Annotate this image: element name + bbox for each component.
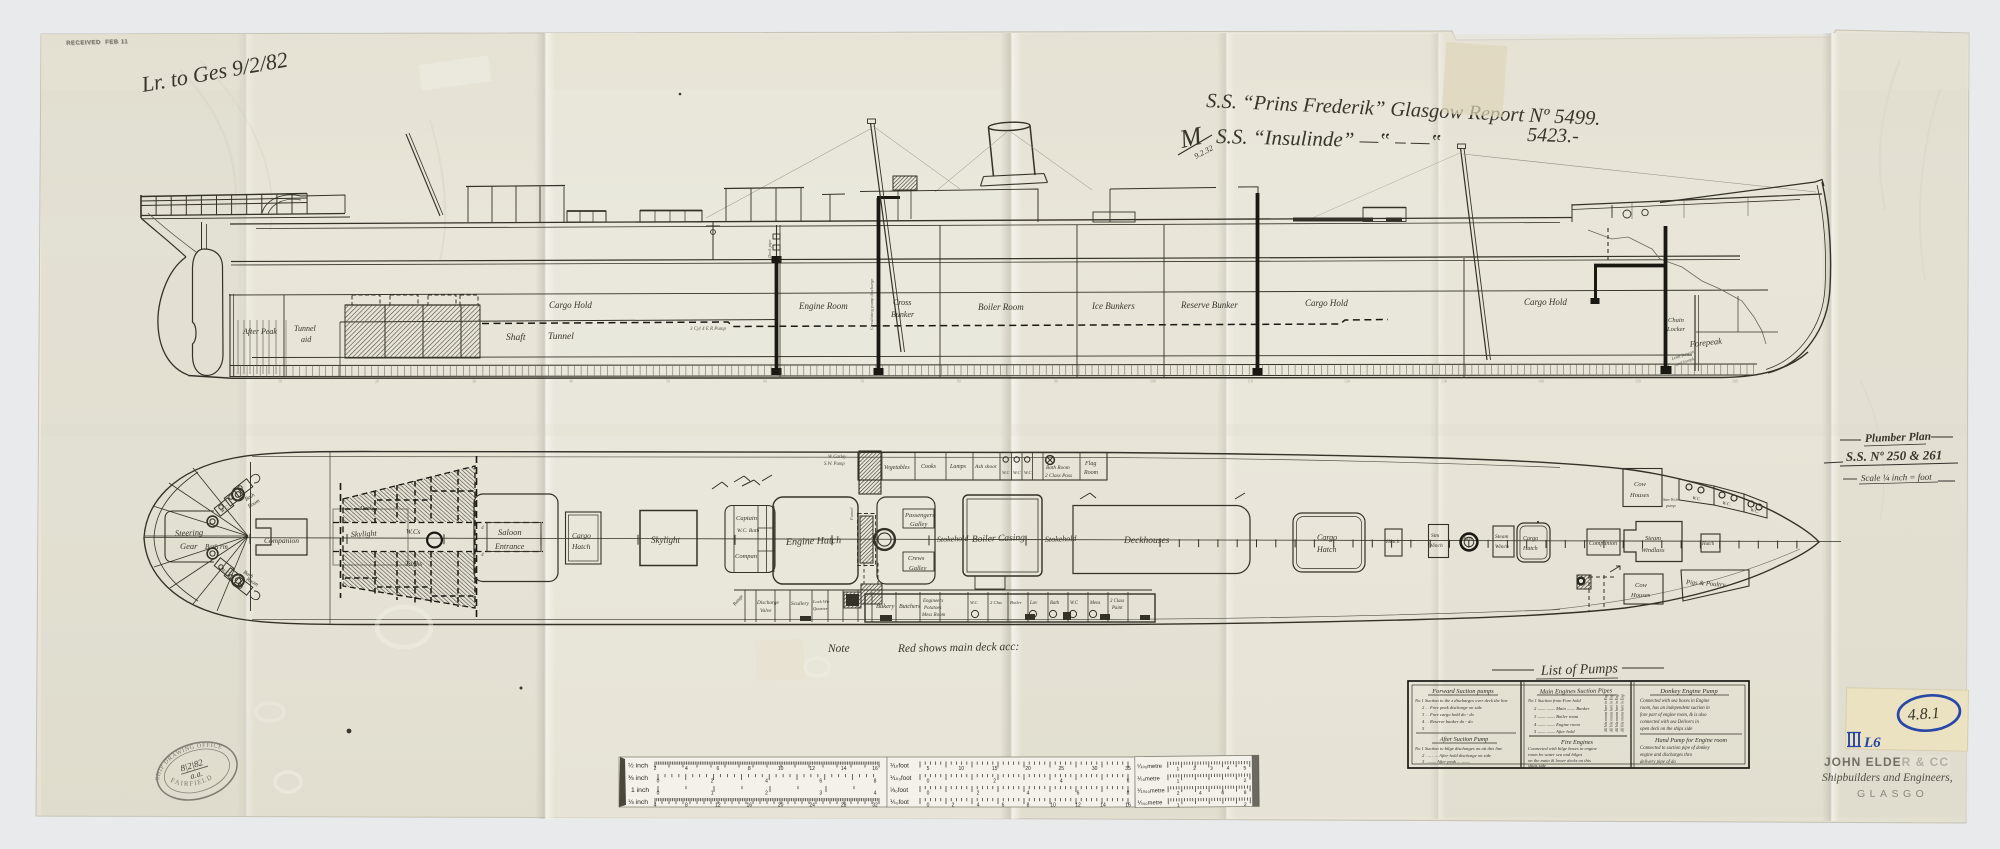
svg-text:8: 8	[1027, 803, 1030, 809]
svg-text:W.C. Bath: W.C. Bath	[737, 528, 760, 534]
svg-text:connected with sea Delivers: connected with sea Delivers in	[1640, 720, 1699, 725]
svg-text:Deck: Deck	[359, 506, 373, 512]
svg-text:Tanks: Tanks	[405, 559, 422, 568]
svg-text:Paint: Paint	[1111, 606, 1123, 611]
svg-text:2: 2	[977, 791, 980, 797]
svg-text:Tunnel: Tunnel	[294, 324, 317, 333]
svg-text:ships side: ships side	[1528, 763, 1546, 768]
svg-text:Houses: Houses	[1630, 592, 1651, 599]
svg-text:Note: Note	[827, 643, 850, 655]
svg-text:⅕₀metre: ⅕₀metre	[1137, 776, 1160, 782]
svg-text:2 Clas: 2 Clas	[990, 600, 1002, 605]
svg-text:Discharge: Discharge	[756, 600, 780, 606]
svg-text:Bath Room: Bath Room	[1046, 465, 1070, 471]
svg-text:Bath: Bath	[1050, 601, 1060, 606]
svg-text:2 Class: 2 Class	[1110, 599, 1124, 604]
svg-text:Cooks: Cooks	[921, 464, 937, 470]
svg-text:Funnel: Funnel	[849, 507, 854, 521]
svg-text:8: 8	[685, 803, 688, 809]
svg-text:Mens: Mens	[1089, 601, 1101, 606]
svg-text:W.C: W.C	[1024, 470, 1033, 475]
svg-text:Flag: Flag	[1084, 461, 1096, 467]
svg-text:Butchers: Butchers	[899, 604, 921, 610]
svg-text:20: 20	[375, 379, 379, 384]
svg-text:1: 1	[1177, 779, 1180, 785]
svg-text:4: 4	[1027, 791, 1030, 797]
svg-text:⅕₀foot: ⅕₀foot	[890, 799, 909, 806]
svg-text:Boiler Room: Boiler Room	[978, 302, 1024, 312]
svg-text:30: 30	[1092, 766, 1098, 772]
svg-text:2: 2	[654, 766, 657, 772]
svg-text:2 . . Fore peak di: 2 . . Fore peak discharge on side	[1422, 705, 1482, 710]
svg-text:Connected with sea boxes in E: Connected with sea boxes in Engine	[1640, 699, 1710, 704]
svg-text:10: 10	[278, 379, 282, 384]
svg-text:Vegetables: Vegetables	[884, 465, 910, 471]
svg-text:W.C: W.C	[1070, 601, 1079, 606]
svg-text:10: 10	[778, 766, 784, 772]
svg-text:Boiler: Boiler	[1010, 600, 1022, 605]
svg-text:5: 5	[1243, 765, 1246, 771]
svg-text:Circulating pump discharge: Circulating pump discharge	[869, 279, 874, 330]
svg-text:No 1 Suction from Fore hold: No 1 Suction from Fore hold	[1527, 698, 1581, 703]
svg-text:Steering: Steering	[175, 527, 204, 538]
svg-text:4: 4	[765, 779, 768, 785]
svg-text:90: 90	[1054, 379, 1058, 384]
svg-text:Fire Engines: Fire Engines	[1560, 739, 1593, 746]
svg-text:Plumber Plan: Plumber Plan	[1865, 431, 1932, 445]
svg-text:Steam: Steam	[1495, 534, 1508, 540]
svg-text:Galley: Galley	[909, 565, 926, 572]
svg-text:Hatch: Hatch	[1701, 542, 1715, 547]
svg-text:Potatoes: Potatoes	[923, 606, 942, 611]
svg-text:2: 2	[765, 791, 768, 797]
svg-text:Donkey Engine Pump: Donkey Engine Pump	[1659, 688, 1718, 695]
svg-text:Valve: Valve	[760, 608, 772, 614]
svg-text:50: 50	[666, 379, 670, 384]
svg-text:Tunnel: Tunnel	[548, 332, 574, 342]
svg-text:1: 1	[1177, 803, 1180, 809]
svg-text:Main Engines Suction Pipes: Main Engines Suction Pipes	[1539, 687, 1613, 695]
svg-text:6: 6	[1077, 791, 1080, 797]
svg-text:4: 4	[1227, 766, 1230, 772]
svg-text:Cargo Hold: Cargo Hold	[1305, 298, 1348, 308]
svg-text:Skylight: Skylight	[651, 535, 680, 545]
svg-text:4: 4	[481, 524, 484, 531]
svg-text:Boiler Casing: Boiler Casing	[972, 533, 1026, 545]
svg-text:5423.-: 5423.-	[1527, 124, 1579, 147]
svg-text:Cargo: Cargo	[572, 531, 591, 540]
svg-text:⅛ inch: ⅛ inch	[628, 799, 648, 806]
svg-text:30: 30	[472, 379, 476, 384]
svg-text:6: 6	[1221, 790, 1224, 796]
svg-text:4: 4	[1199, 790, 1202, 796]
svg-text:14: 14	[1100, 803, 1106, 809]
svg-text:Cargo Hold: Cargo Hold	[1524, 297, 1567, 307]
svg-text:All bilz rooms here in Eng: All bilz rooms here in Eng	[1621, 694, 1625, 733]
svg-text:20: 20	[778, 803, 784, 809]
svg-text:Shipbuilders and Engineers,: Shipbuilders and Engineers,	[1822, 772, 1953, 784]
svg-text:8: 8	[874, 779, 877, 785]
svg-text:28: 28	[841, 803, 847, 809]
svg-text:0: 0	[927, 791, 930, 797]
svg-text:Hatch: Hatch	[1385, 539, 1400, 545]
svg-text:12: 12	[715, 803, 721, 809]
svg-text:All bilz rooms here in Eng: All bilz rooms here in Eng	[1615, 694, 1619, 733]
svg-text:⅜ inch: ⅜ inch	[628, 775, 648, 782]
svg-text:4: 4	[481, 551, 484, 558]
svg-text:Stm Wch: Stm Wch	[1663, 497, 1679, 502]
svg-text:3 . —— After peak ...: 3 . —— After peak ... ——	[1422, 759, 1471, 764]
svg-text:Engineers: Engineers	[922, 599, 943, 604]
svg-text:4: 4	[977, 803, 980, 809]
svg-text:3 —— —— Boiler room: 3 —— —— Boiler room	[1534, 714, 1579, 719]
svg-text:Compan: Compan	[735, 553, 757, 560]
svg-text:⅕₀₀metre: ⅕₀₀metre	[1137, 800, 1162, 806]
svg-text:Hatch: Hatch	[1316, 545, 1337, 554]
svg-text:Forward Suction pumps: Forward Suction pumps	[1431, 688, 1494, 695]
svg-text:Saloon: Saloon	[498, 527, 522, 537]
svg-text:W.C: W.C	[1002, 470, 1011, 475]
svg-text:Companion: Companion	[264, 536, 299, 545]
svg-text:aid: aid	[301, 335, 312, 344]
svg-text:2 —— —— Main —— Bunker: 2 —— —— Main —— Bunker	[1534, 706, 1590, 711]
svg-text:Engine Room: Engine Room	[798, 301, 848, 311]
svg-text:Galley: Galley	[910, 521, 927, 528]
svg-text:4.8.1: 4.8.1	[1907, 705, 1940, 724]
svg-text:Stm: Stm	[1431, 533, 1439, 539]
svg-text:3 . . Fore cargo ho: 3 . . Fore cargo hold do - do	[1422, 712, 1475, 717]
svg-text:Crews: Crews	[908, 555, 925, 562]
svg-text:Red shows main deck acc:: Red shows main deck acc:	[897, 641, 1020, 655]
svg-text:2: 2	[711, 779, 714, 785]
svg-text:W.C: W.C	[970, 600, 979, 605]
svg-text:Passengers: Passengers	[904, 512, 935, 519]
svg-text:6: 6	[1127, 779, 1130, 785]
svg-text:Cow: Cow	[1634, 481, 1647, 488]
svg-text:W.C: W.C	[1013, 470, 1022, 475]
svg-text:fore part of engine room, & is: fore part of engine room, & is also	[1640, 713, 1707, 718]
svg-text:Scale ¼ inch = foot: Scale ¼ inch = foot	[1861, 472, 1932, 483]
svg-text:2: 2	[1244, 778, 1247, 784]
svg-text:Winch: Winch	[1495, 544, 1509, 550]
svg-text:GLASGO: GLASGO	[1857, 788, 1928, 800]
svg-text:5: 5	[927, 766, 930, 772]
svg-text:room bo water sea and bil: room bo water sea and bilges	[1528, 752, 1583, 757]
svg-text:All bilz rooms here in Eng: All bilz rooms here in Eng	[1610, 694, 1614, 733]
svg-text:20: 20	[1025, 766, 1031, 772]
svg-text:S.W. Pump: S.W. Pump	[824, 462, 845, 467]
svg-text:150: 150	[1635, 379, 1641, 384]
svg-text:W Carley: W Carley	[828, 455, 847, 460]
svg-text:Lav: Lav	[1029, 601, 1038, 606]
svg-text:130: 130	[1441, 379, 1447, 384]
svg-text:1: 1	[711, 791, 714, 797]
svg-text:5 —— —— After hold: 5 —— —— After hold	[1534, 729, 1575, 734]
svg-text:Houses: Houses	[1629, 492, 1650, 499]
svg-text:120: 120	[1344, 379, 1350, 384]
svg-text:Stokehold: Stokehold	[937, 534, 970, 544]
svg-text:No 1 Suction to bilge discharg: No 1 Suction to bilge discharges on att …	[1414, 746, 1502, 751]
svg-text:Hatch: Hatch	[571, 542, 591, 551]
svg-text:8: 8	[1127, 791, 1130, 797]
svg-text:4: 4	[654, 803, 657, 809]
svg-text:Companion: Companion	[1589, 541, 1617, 547]
svg-text:⅒foot: ⅒foot	[890, 763, 909, 770]
svg-text:Room: Room	[1083, 470, 1099, 476]
svg-text:12: 12	[1075, 803, 1081, 809]
svg-text:Scullery: Scullery	[791, 601, 810, 607]
svg-text:Captain: Captain	[736, 515, 757, 522]
svg-text:2: 2	[1193, 766, 1196, 772]
svg-text:2: 2	[1177, 791, 1180, 797]
svg-text:4 . . Reserve bunke: 4 . . Reserve bunker do - do	[1422, 719, 1473, 724]
svg-text:1 inch: 1 inch	[631, 787, 649, 794]
svg-text:After Peak: After Peak	[242, 327, 277, 336]
svg-text:4: 4	[874, 791, 877, 797]
svg-text:0: 0	[657, 791, 660, 797]
svg-text:Hand Pump for Engine room: Hand Pump for Engine room	[1654, 737, 1727, 744]
svg-text:Chain: Chain	[1668, 317, 1684, 324]
svg-text:Entrance: Entrance	[494, 542, 525, 551]
svg-text:⅒₀foot: ⅒₀foot	[890, 775, 912, 782]
svg-text:Connected to suction pipe of d: Connected to suction pipe of donkey	[1640, 746, 1711, 751]
svg-text:No 1 Suction to the z discharg: No 1 Suction to the z discharges over de…	[1414, 698, 1508, 703]
svg-text:100: 100	[1150, 379, 1156, 384]
svg-text:Deck pipe: Deck pipe	[767, 240, 772, 260]
svg-text:Cargo: Cargo	[1317, 533, 1337, 542]
svg-text:⅓₀foot: ⅓₀foot	[890, 787, 908, 794]
svg-text:Reserve Bunker: Reserve Bunker	[1180, 300, 1238, 310]
svg-text:Cross: Cross	[893, 298, 911, 307]
svg-text:List of Pumps: List of Pumps	[1540, 661, 1619, 679]
svg-text:Deckhouses: Deckhouses	[1123, 536, 1170, 546]
svg-text:2 . ... . ... After hold: 2 . ... . ... After hold discharge on si…	[1422, 753, 1491, 758]
svg-text:Mast: Mast	[1460, 536, 1472, 542]
svg-text:6: 6	[819, 779, 822, 785]
svg-text:Lock Wtr: Lock Wtr	[812, 599, 830, 604]
svg-text:Winch: Winch	[1429, 543, 1443, 549]
svg-text:110: 110	[1247, 379, 1253, 384]
svg-text:0: 0	[657, 779, 660, 785]
svg-text:room, has an independent suct: room, has an independent suction in	[1640, 706, 1710, 711]
svg-text:All bilz rooms here in Eng: All bilz rooms here in Eng	[1604, 694, 1608, 733]
svg-text:Hatch: Hatch	[1522, 546, 1538, 552]
svg-text:2 Class Pass: 2 Class Pass	[1045, 473, 1072, 479]
svg-text:8: 8	[748, 766, 751, 772]
svg-text:32: 32	[872, 803, 878, 809]
svg-text:delivery pipe of do: delivery pipe of do	[1640, 760, 1676, 765]
svg-text:40: 40	[569, 379, 573, 384]
svg-text:W.Cs: W.Cs	[406, 528, 421, 536]
svg-text:Skylight: Skylight	[351, 529, 378, 539]
svg-text:15: 15	[992, 766, 998, 772]
svg-text:10: 10	[1050, 803, 1056, 809]
svg-text:⅒₀₀metre: ⅒₀₀metre	[1137, 788, 1165, 794]
svg-text:0: 0	[927, 803, 930, 809]
svg-text:open deck on the ships side: open deck on the ships side	[1640, 727, 1693, 732]
svg-text:Cow: Cow	[1635, 582, 1648, 589]
svg-text:Steam: Steam	[1645, 535, 1661, 542]
svg-text:Ash shoot: Ash shoot	[974, 464, 997, 470]
svg-text:4: 4	[1060, 779, 1063, 785]
svg-text:S.S. Nº 250 & 261: S.S. Nº 250 & 261	[1846, 447, 1943, 464]
svg-text:4: 4	[685, 766, 688, 772]
svg-text:Locker: Locker	[1666, 326, 1686, 333]
svg-text:14: 14	[841, 766, 847, 772]
svg-text:160: 160	[1732, 379, 1738, 384]
svg-text:3: 3	[819, 791, 822, 797]
svg-text:Quarter: Quarter	[813, 606, 828, 611]
svg-text:3: 3	[1210, 766, 1213, 772]
svg-text:6: 6	[717, 766, 720, 772]
svg-text:Windlass: Windlass	[1641, 547, 1665, 554]
svg-text:25: 25	[1059, 766, 1065, 772]
svg-text:Connected with bilge boxes i: Connected with bilge boxes in engine	[1528, 746, 1597, 751]
svg-text:2: 2	[952, 803, 955, 809]
svg-text:Shaft: Shaft	[506, 332, 526, 343]
svg-text:1: 1	[1176, 766, 1179, 772]
svg-text:6: 6	[1002, 803, 1005, 809]
svg-text:70: 70	[860, 379, 864, 384]
svg-text:Engine Hatch: Engine Hatch	[785, 535, 842, 548]
svg-text:Lamps: Lamps	[949, 464, 967, 470]
svg-text:8: 8	[1244, 790, 1247, 796]
svg-text:Ice Bunkers: Ice Bunkers	[1091, 301, 1135, 311]
svg-text:16: 16	[747, 803, 753, 809]
svg-text:140: 140	[1538, 379, 1544, 384]
svg-text:2: 2	[993, 779, 996, 785]
svg-text:16: 16	[872, 766, 878, 772]
svg-text:35: 35	[1125, 766, 1131, 772]
svg-text:Mess Room: Mess Room	[921, 613, 946, 618]
svg-text:24: 24	[809, 803, 815, 809]
svg-text:After Suction Pump: After Suction Pump	[1439, 736, 1488, 743]
svg-text:Gear: Gear	[180, 541, 198, 551]
svg-text:2: 2	[1244, 802, 1247, 808]
svg-text:0: 0	[927, 779, 930, 785]
svg-text:Cargo Hold: Cargo Hold	[549, 300, 592, 310]
svg-text:3 Cyl 4 E R Pump: 3 Cyl 4 E R Pump	[690, 327, 726, 332]
svg-text:4 —— —— Engine room: 4 —— —— Engine room	[1534, 722, 1580, 727]
svg-text:10: 10	[959, 766, 965, 772]
svg-text:engine and discharges thro: engine and discharges thro	[1640, 753, 1693, 758]
svg-text:80: 80	[957, 379, 961, 384]
svg-text:Bunker: Bunker	[891, 310, 915, 319]
svg-text:½ inch: ½ inch	[628, 762, 648, 770]
svg-text:⅒₀metre: ⅒₀metre	[1137, 764, 1162, 770]
svg-text:16: 16	[1125, 803, 1131, 809]
svg-text:L6: L6	[1863, 735, 1881, 751]
svg-text:pump: pump	[1665, 503, 1677, 508]
svg-text:12: 12	[809, 766, 815, 772]
svg-text:Cargo: Cargo	[1523, 536, 1538, 542]
svg-text:60: 60	[763, 379, 767, 384]
